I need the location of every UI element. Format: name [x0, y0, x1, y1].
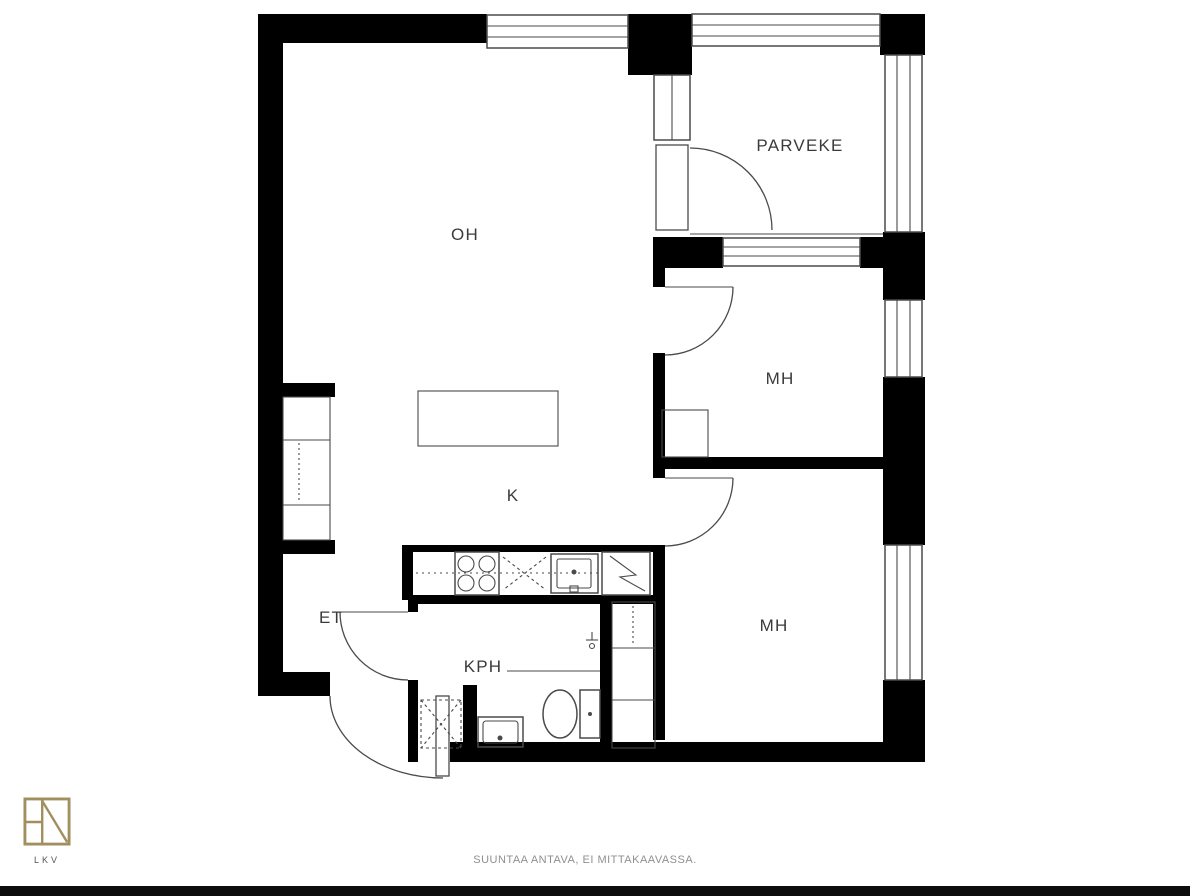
- room-label-bathroom: KPH: [464, 657, 503, 677]
- window-mh2-right: [885, 545, 922, 680]
- window-balcony-right: [885, 55, 922, 232]
- fridge: [602, 552, 650, 595]
- wall-segment: [653, 457, 883, 469]
- wall-segment: [653, 237, 723, 268]
- window-oh-balcony: [654, 75, 690, 140]
- wall-segment: [653, 268, 665, 287]
- toilet: [543, 690, 600, 738]
- wall-segment: [600, 602, 612, 742]
- room-label-bedroom-1: MH: [766, 369, 795, 389]
- island-table: [418, 391, 558, 446]
- wall-segment: [408, 595, 655, 604]
- wall-segment: [880, 14, 925, 55]
- wall-segment: [258, 14, 487, 43]
- kitchen-sink: [551, 554, 598, 593]
- disclaimer-text: SUUNTAA ANTAVA, EI MITTAKAAVASSA.: [473, 854, 697, 866]
- faucet-icon: [586, 632, 598, 649]
- window-oh-top: [487, 15, 628, 48]
- bathroom-door: [340, 612, 408, 680]
- bedroom2-door: [665, 478, 733, 546]
- wall-segment: [283, 540, 335, 554]
- room-label-living-room: OH: [451, 225, 479, 245]
- wall-segment: [408, 595, 418, 612]
- wall-segment: [860, 237, 888, 268]
- window-mh1-right: [885, 300, 922, 377]
- bathroom-sink: [478, 717, 523, 747]
- window-mh1-top: [723, 238, 860, 266]
- balcony-door: [656, 145, 883, 234]
- walls: [258, 14, 925, 762]
- windows: [487, 14, 922, 680]
- wall-segment: [450, 742, 925, 762]
- wall-segment: [408, 680, 418, 762]
- wall-segment: [283, 383, 335, 397]
- wardrobe-mh1: [662, 410, 708, 457]
- window-balcony-top: [692, 14, 880, 46]
- room-label-entrance-hall: ET: [319, 608, 343, 628]
- kitchen-fixtures: [416, 391, 650, 595]
- wall-segment: [258, 672, 330, 696]
- wall-segment: [883, 232, 925, 300]
- wall-segment: [883, 377, 925, 545]
- lkv-logo-text: LKV: [23, 855, 71, 865]
- wall-segment: [258, 14, 283, 696]
- floor-plan-drawing: [0, 0, 1190, 896]
- wardrobe-oh: [283, 397, 330, 540]
- lkv-logo-monogram-icon: [23, 797, 71, 847]
- entrance-door: [330, 696, 449, 778]
- room-label-kitchen: K: [507, 486, 520, 506]
- room-label-bedroom-2: MH: [760, 616, 789, 636]
- wardrobe-column: [612, 602, 655, 748]
- wall-segment: [402, 545, 653, 552]
- bottom-black-bar: [0, 886, 1190, 896]
- wall-segment: [628, 14, 692, 75]
- room-label-balcony: PARVEKE: [756, 136, 843, 156]
- floor-plan-page: OH PARVEKE MH K MH ET KPH LKV SUUNTAA AN…: [0, 0, 1190, 896]
- wall-segment: [402, 545, 413, 600]
- bedroom1-door: [665, 287, 733, 355]
